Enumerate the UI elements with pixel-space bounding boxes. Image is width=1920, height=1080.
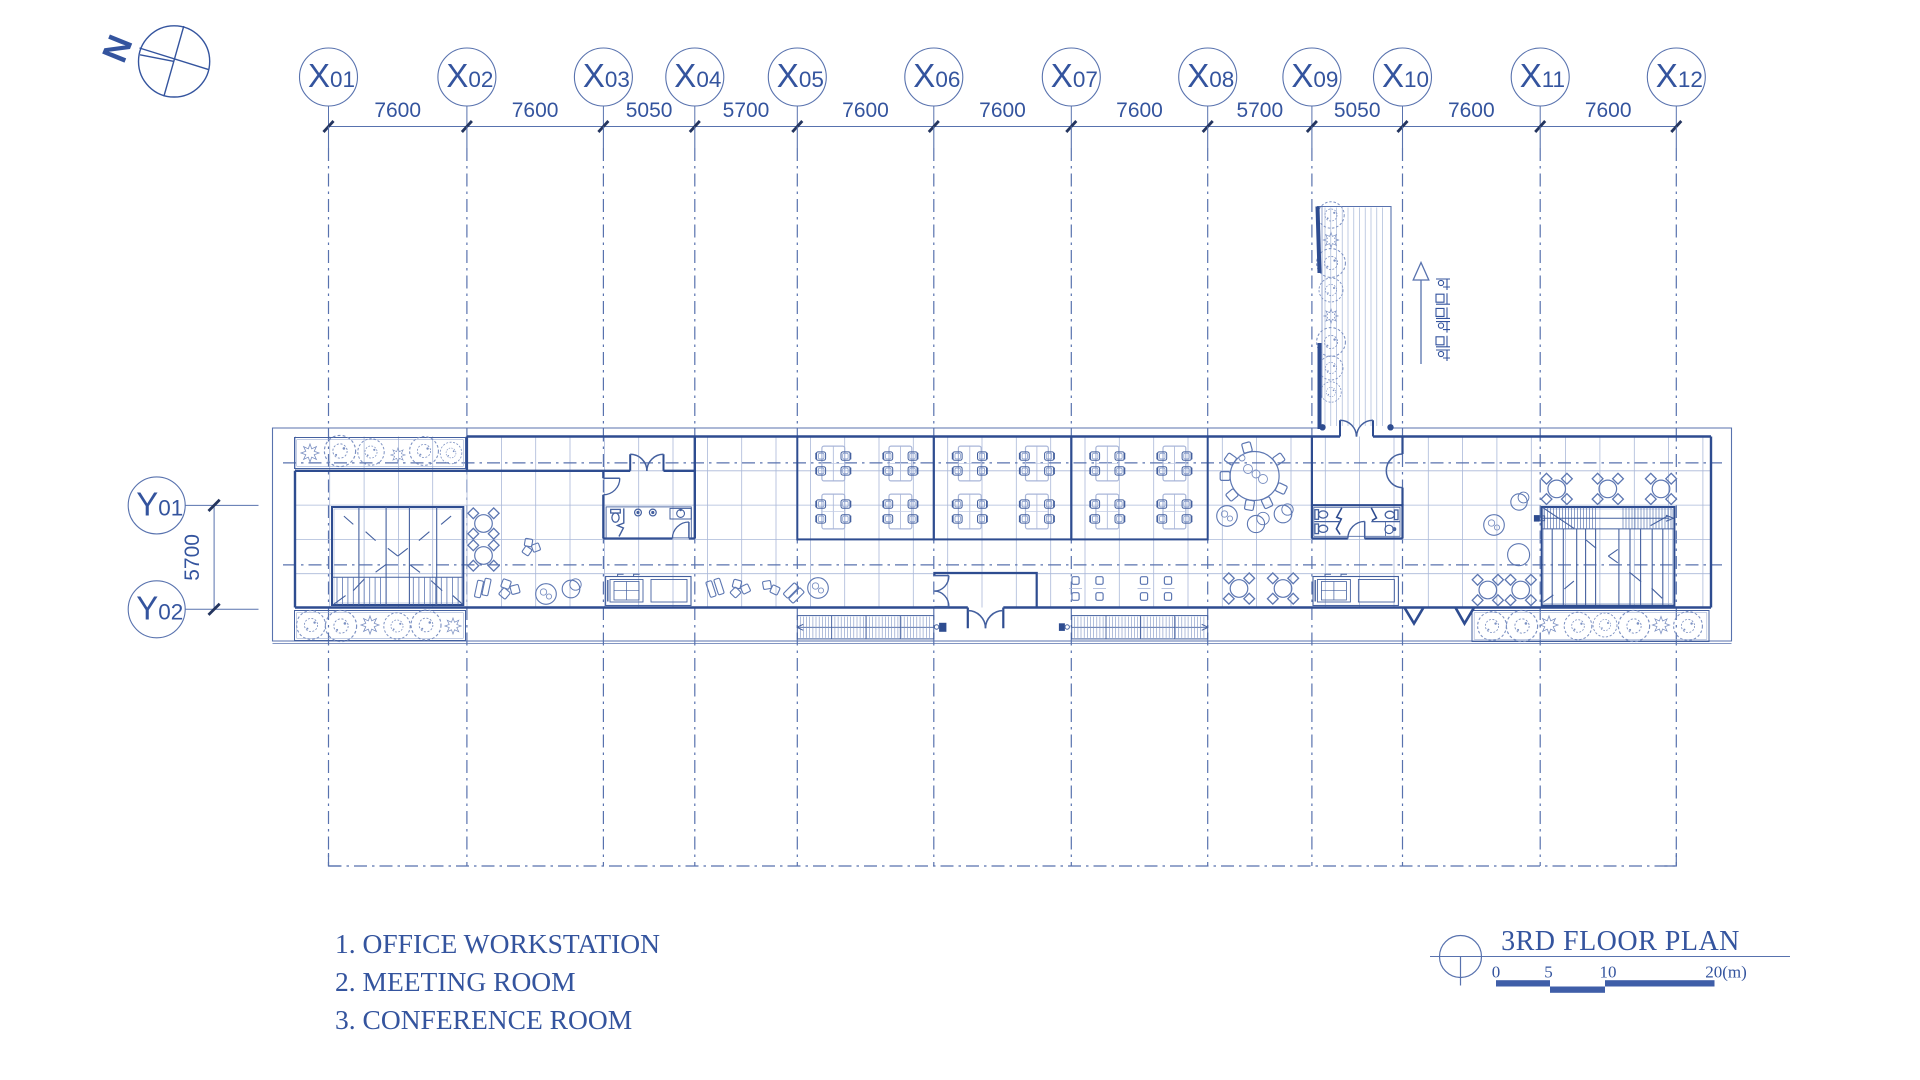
svg-text:5050: 5050 (626, 99, 673, 122)
svg-text:20(m): 20(m) (1705, 963, 1747, 982)
svg-text:5700: 5700 (723, 99, 770, 122)
svg-text:5700: 5700 (1236, 99, 1283, 122)
svg-text:10: 10 (1600, 963, 1617, 982)
svg-text:0: 0 (1492, 963, 1501, 982)
svg-text:3. CONFERENCE ROOM: 3. CONFERENCE ROOM (335, 1004, 632, 1035)
svg-text:5700: 5700 (181, 534, 204, 581)
svg-text:7600: 7600 (1116, 99, 1163, 122)
svg-text:2. MEETING ROOM: 2. MEETING ROOM (335, 966, 576, 997)
svg-text:7600: 7600 (1448, 99, 1495, 122)
svg-text:3RD FLOOR PLAN: 3RD FLOOR PLAN (1501, 926, 1740, 957)
svg-text:7600: 7600 (1585, 99, 1632, 122)
svg-text:5: 5 (1544, 963, 1553, 982)
svg-text:7600: 7600 (512, 99, 559, 122)
svg-text:7600: 7600 (979, 99, 1026, 122)
svg-text:5050: 5050 (1334, 99, 1381, 122)
svg-text:7600: 7600 (374, 99, 421, 122)
svg-text:1. OFFICE WORKSTATION: 1. OFFICE WORKSTATION (335, 928, 660, 959)
svg-text:7600: 7600 (842, 99, 889, 122)
